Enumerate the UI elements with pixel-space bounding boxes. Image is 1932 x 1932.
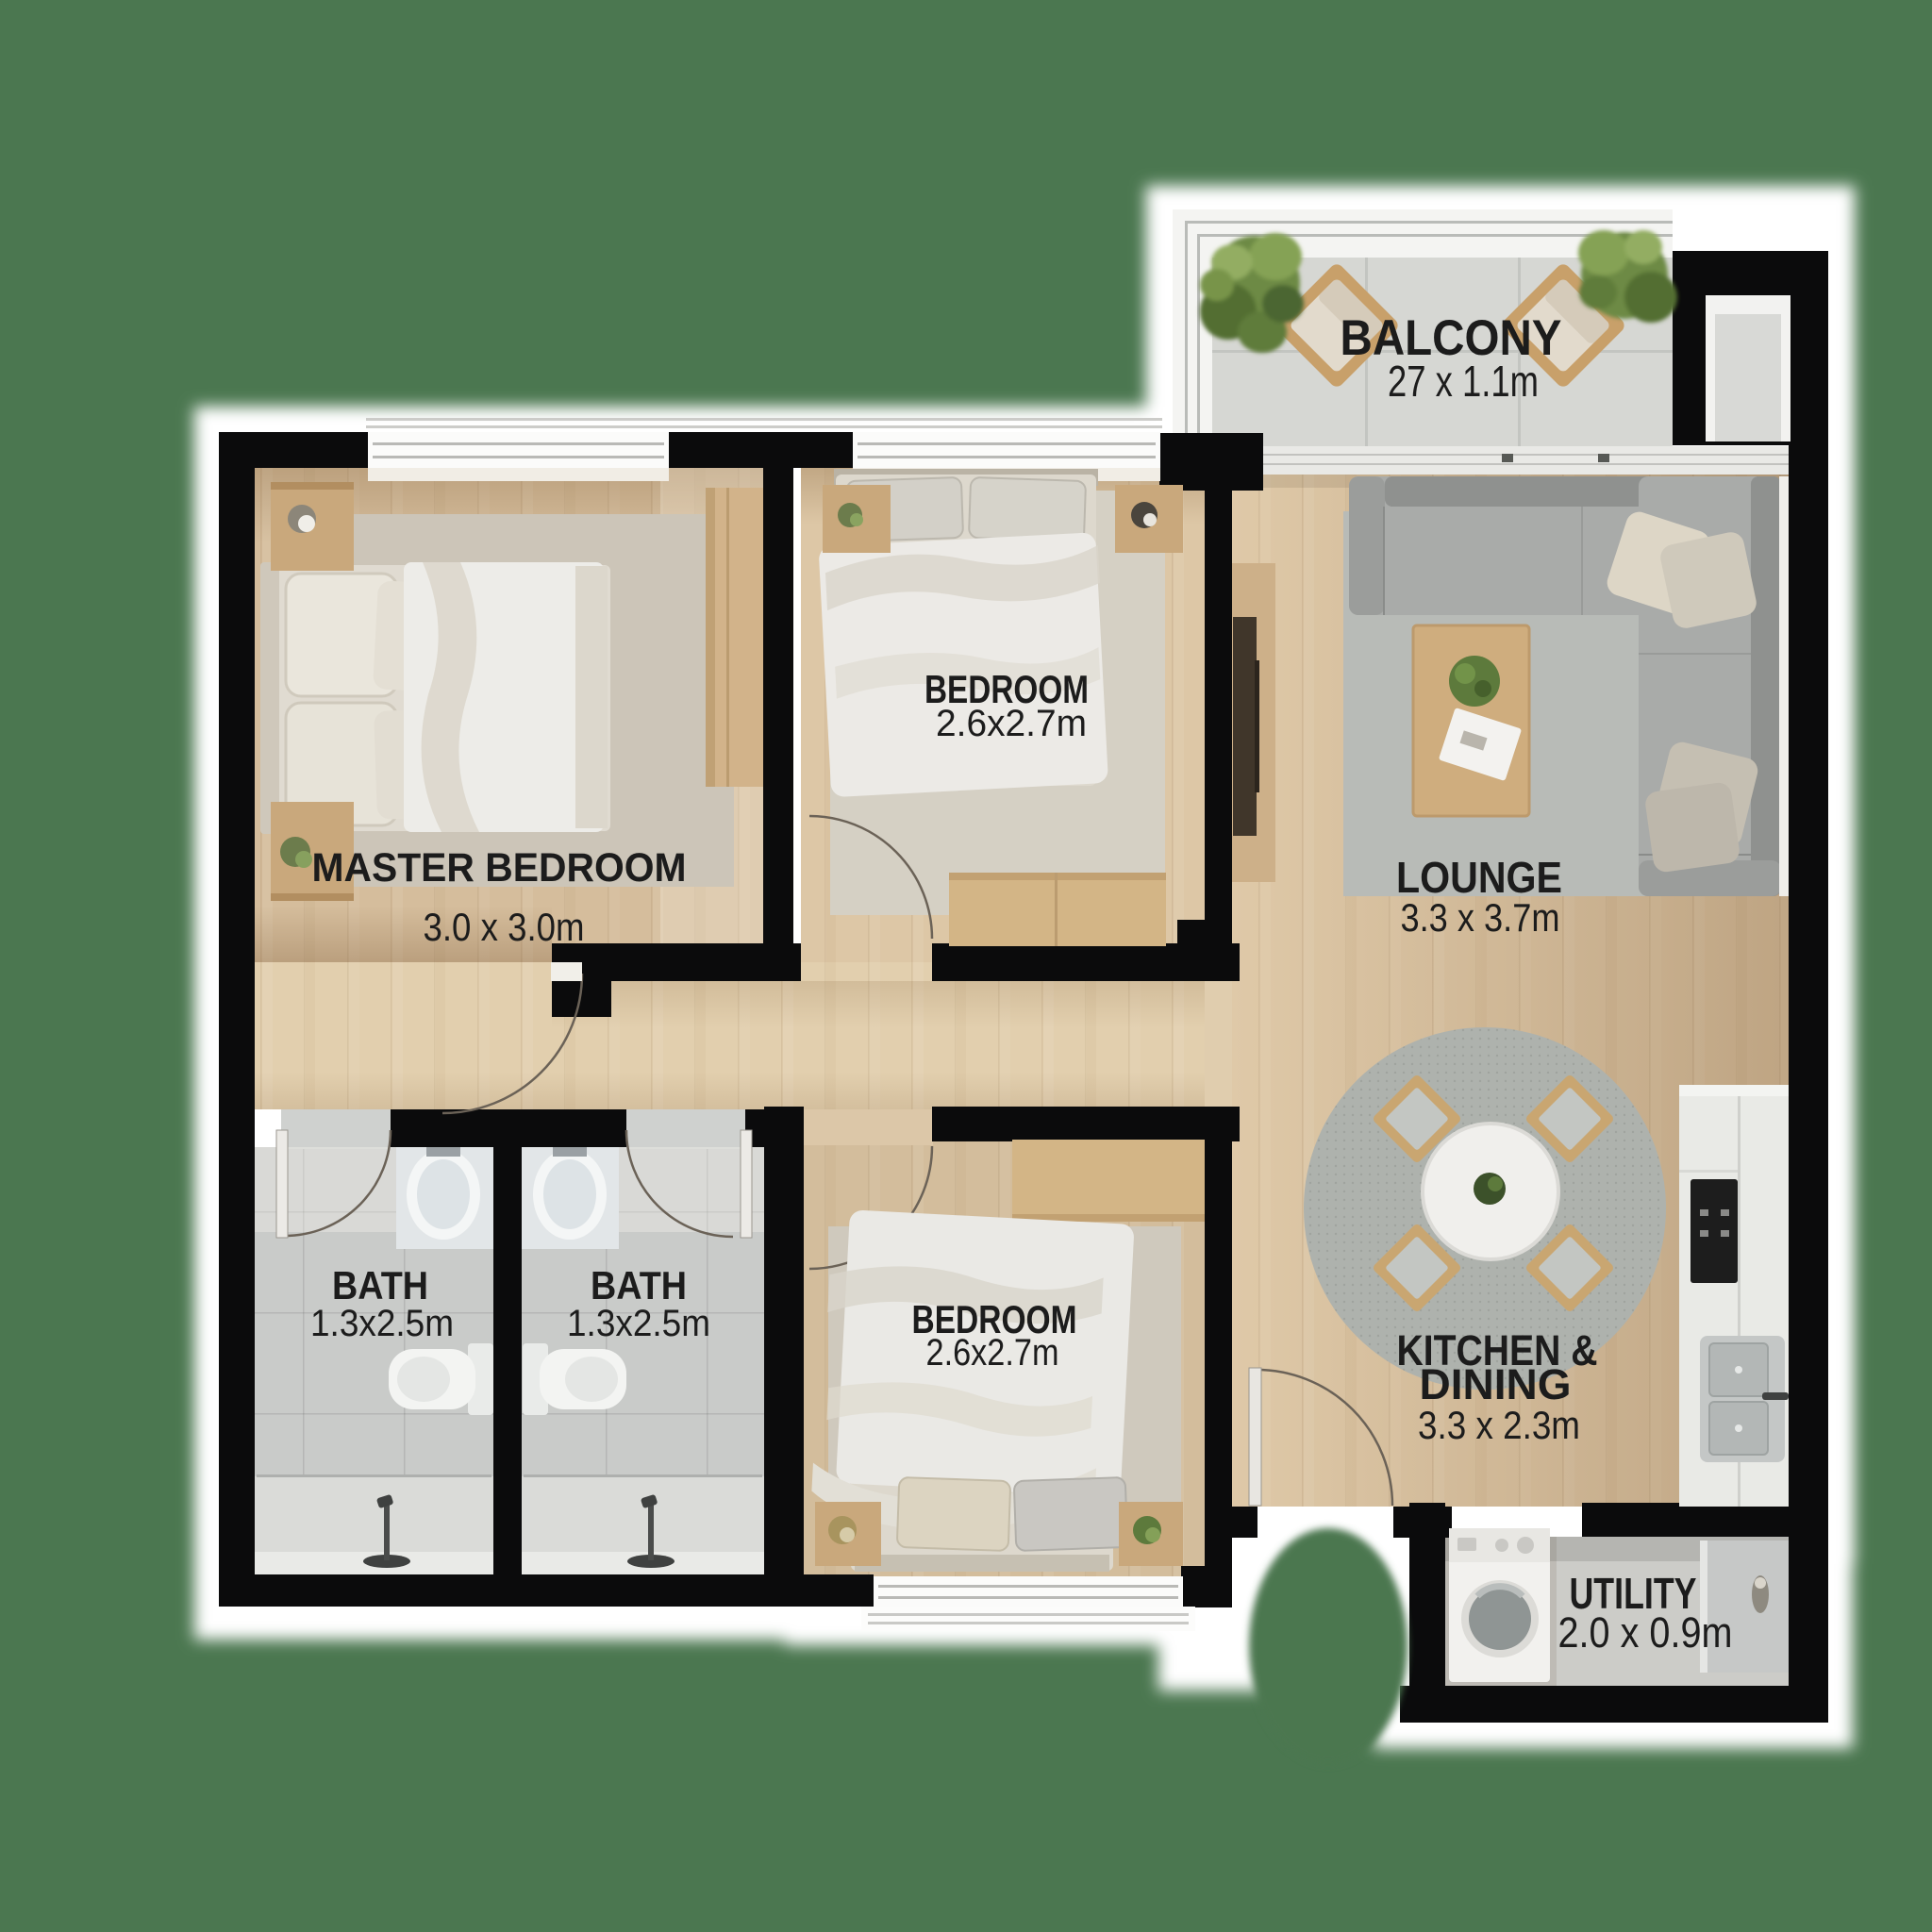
svg-text:2.6x2.7m: 2.6x2.7m [936, 703, 1087, 744]
svg-text:DINING: DINING [1420, 1360, 1572, 1408]
svg-text:2.6x2.7m: 2.6x2.7m [926, 1332, 1059, 1374]
svg-text:2.0 x 0.9m: 2.0 x 0.9m [1558, 1608, 1733, 1657]
svg-text:1.3x2.5m: 1.3x2.5m [310, 1303, 454, 1344]
svg-text:MASTER BEDROOM: MASTER BEDROOM [312, 845, 687, 891]
svg-text:3.3 x 3.7m: 3.3 x 3.7m [1401, 895, 1560, 940]
svg-text:3.3 x 2.3m: 3.3 x 2.3m [1418, 1403, 1580, 1447]
svg-text:BATH: BATH [332, 1263, 428, 1307]
svg-text:1.3x2.5m: 1.3x2.5m [567, 1303, 710, 1344]
svg-text:27 x 1.1m: 27 x 1.1m [1388, 357, 1539, 406]
svg-text:BATH: BATH [591, 1263, 687, 1307]
svg-text:3.0 x 3.0m: 3.0 x 3.0m [424, 905, 585, 949]
